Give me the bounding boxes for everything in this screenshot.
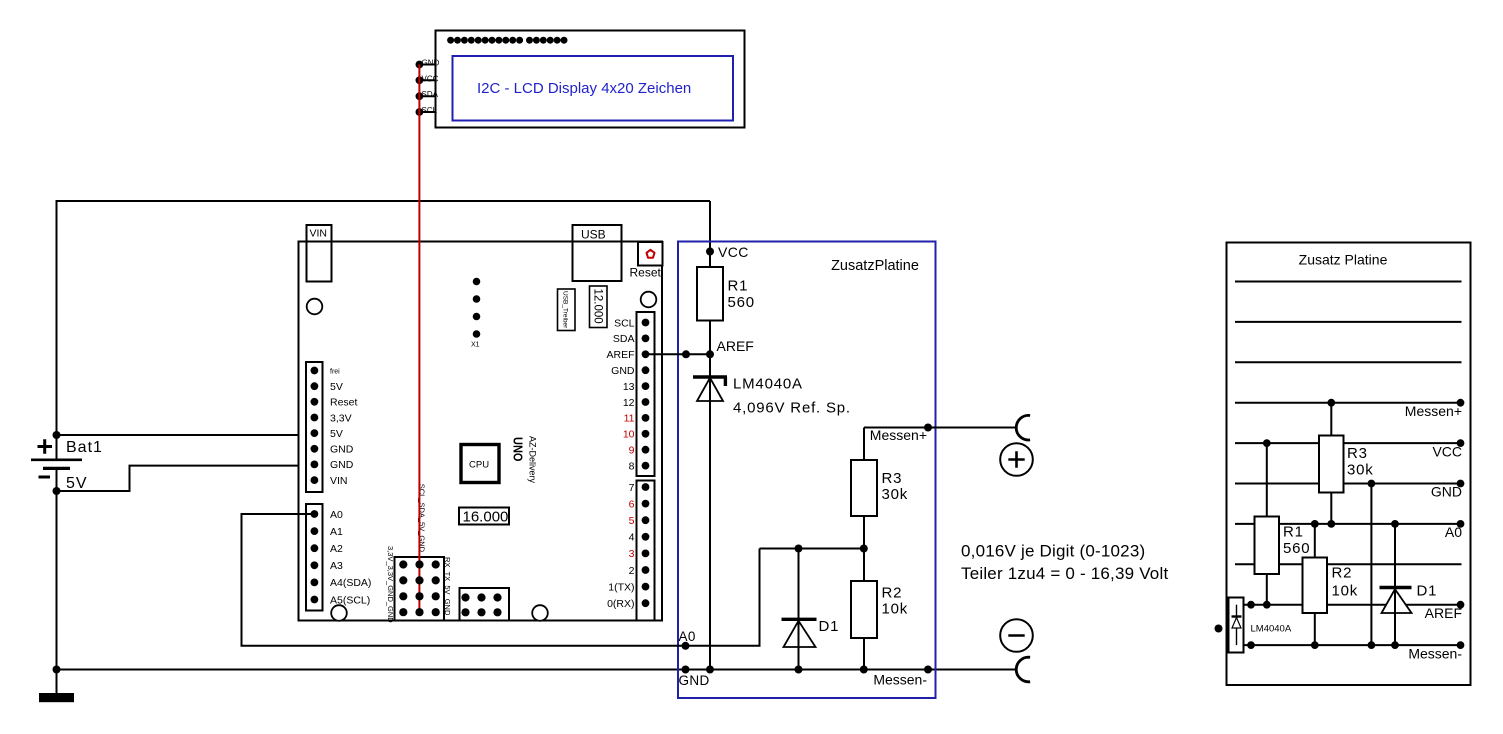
svg-text:X1: X1: [471, 342, 480, 349]
svg-text:CPU: CPU: [469, 460, 489, 471]
svg-text:10: 10: [623, 429, 635, 441]
svg-text:frei: frei: [330, 369, 340, 376]
svg-text:Messen-: Messen-: [873, 672, 927, 688]
svg-text:5: 5: [629, 515, 635, 527]
svg-text:AZ-Delivery: AZ-Delivery: [528, 436, 538, 484]
svg-text:5V: 5V: [330, 381, 343, 393]
svg-text:Bat1: Bat1: [66, 439, 103, 456]
svg-text:GND: GND: [330, 444, 354, 456]
svg-text:11: 11: [624, 413, 635, 425]
svg-text:GND: GND: [1431, 484, 1462, 500]
svg-text:1(TX): 1(TX): [608, 581, 634, 593]
svg-text:6: 6: [629, 498, 635, 510]
svg-text:10k: 10k: [882, 601, 909, 618]
svg-text:4: 4: [629, 532, 635, 544]
svg-text:0,016V je Digit (0-1023): 0,016V je Digit (0-1023): [961, 542, 1145, 561]
svg-text:8: 8: [629, 460, 635, 472]
svg-text:5V: 5V: [330, 428, 343, 440]
svg-text:Messen+: Messen+: [1405, 403, 1462, 419]
svg-text:Reset: Reset: [330, 397, 358, 409]
svg-text:A4(SDA): A4(SDA): [330, 577, 371, 589]
svg-text:SDA: SDA: [422, 90, 439, 99]
svg-text:A5(SCL): A5(SCL): [330, 594, 370, 606]
svg-text:560: 560: [1283, 540, 1310, 557]
svg-text:9: 9: [629, 445, 635, 457]
svg-text:R2: R2: [882, 585, 903, 602]
svg-text:SDA: SDA: [613, 333, 635, 345]
svg-text:VCC: VCC: [1432, 443, 1462, 459]
svg-text:VIN: VIN: [310, 228, 328, 240]
svg-text:13: 13: [623, 381, 635, 393]
svg-text:Messen-: Messen-: [1408, 645, 1462, 661]
svg-text:3: 3: [629, 548, 635, 560]
svg-text:VCC: VCC: [718, 244, 749, 260]
svg-text:D1: D1: [819, 618, 840, 635]
svg-text:A3: A3: [330, 560, 343, 572]
svg-text:A0: A0: [330, 509, 343, 521]
svg-text:A1: A1: [330, 526, 343, 538]
svg-text:UNO: UNO: [511, 437, 526, 462]
svg-text:Teiler 1zu4 = 0 - 16,39 Volt: Teiler 1zu4 = 0 - 16,39 Volt: [961, 564, 1168, 583]
svg-text:R2: R2: [1332, 565, 1353, 582]
svg-text:A0: A0: [1445, 524, 1462, 540]
svg-text:R3: R3: [882, 470, 903, 487]
svg-text:12.000: 12.000: [592, 289, 604, 324]
svg-text:LM4040A: LM4040A: [733, 376, 803, 393]
svg-text:SCL: SCL: [422, 106, 438, 115]
svg-text:560: 560: [728, 294, 755, 311]
svg-text:VCC: VCC: [422, 74, 439, 83]
svg-text:RX_TX_5V_GND: RX_TX_5V_GND: [443, 557, 452, 616]
svg-text:R3: R3: [1347, 445, 1368, 462]
svg-text:0(RX): 0(RX): [607, 598, 634, 610]
svg-text:30k: 30k: [882, 486, 909, 503]
svg-text:3,3V_3,3V_GND_GND: 3,3V_3,3V_GND_GND: [386, 546, 395, 623]
svg-text:GND: GND: [422, 59, 440, 68]
svg-text:R1: R1: [1283, 524, 1304, 541]
svg-text:Zusatz Platine: Zusatz Platine: [1299, 252, 1388, 268]
svg-text:12: 12: [623, 397, 635, 409]
svg-text:GND: GND: [330, 459, 354, 471]
svg-text:3,3V: 3,3V: [330, 412, 352, 424]
svg-text:VIN: VIN: [330, 475, 348, 487]
svg-text:16.000: 16.000: [463, 509, 509, 526]
svg-text:30k: 30k: [1347, 462, 1374, 479]
svg-text:GND: GND: [679, 673, 710, 688]
svg-text:R1: R1: [728, 278, 749, 295]
svg-text:2: 2: [629, 565, 635, 577]
svg-text:Messen+: Messen+: [870, 427, 927, 443]
svg-text:A0: A0: [679, 629, 696, 644]
svg-text:7: 7: [629, 482, 635, 494]
svg-text:LM4040A: LM4040A: [1251, 624, 1292, 635]
svg-text:ZusatzPlatine: ZusatzPlatine: [831, 258, 919, 274]
svg-text:AREF: AREF: [606, 349, 634, 361]
svg-text:AREF: AREF: [1425, 605, 1462, 621]
svg-text:4,096V Ref. Sp.: 4,096V Ref. Sp.: [733, 400, 851, 417]
svg-text:A2: A2: [330, 543, 343, 555]
svg-text:USB: USB: [581, 228, 606, 242]
svg-text:AREF: AREF: [717, 338, 754, 354]
svg-text:10k: 10k: [1332, 582, 1359, 599]
svg-text:5V: 5V: [66, 475, 88, 492]
svg-text:Reset: Reset: [630, 266, 662, 280]
svg-text:D1: D1: [1417, 583, 1438, 600]
svg-text:USB_Treiber: USB_Treiber: [562, 291, 569, 329]
svg-text:I2C - LCD Display 4x20 Zeichen: I2C - LCD Display 4x20 Zeichen: [477, 80, 691, 97]
svg-text:SCL: SCL: [614, 317, 635, 329]
svg-text:GND: GND: [611, 365, 635, 377]
